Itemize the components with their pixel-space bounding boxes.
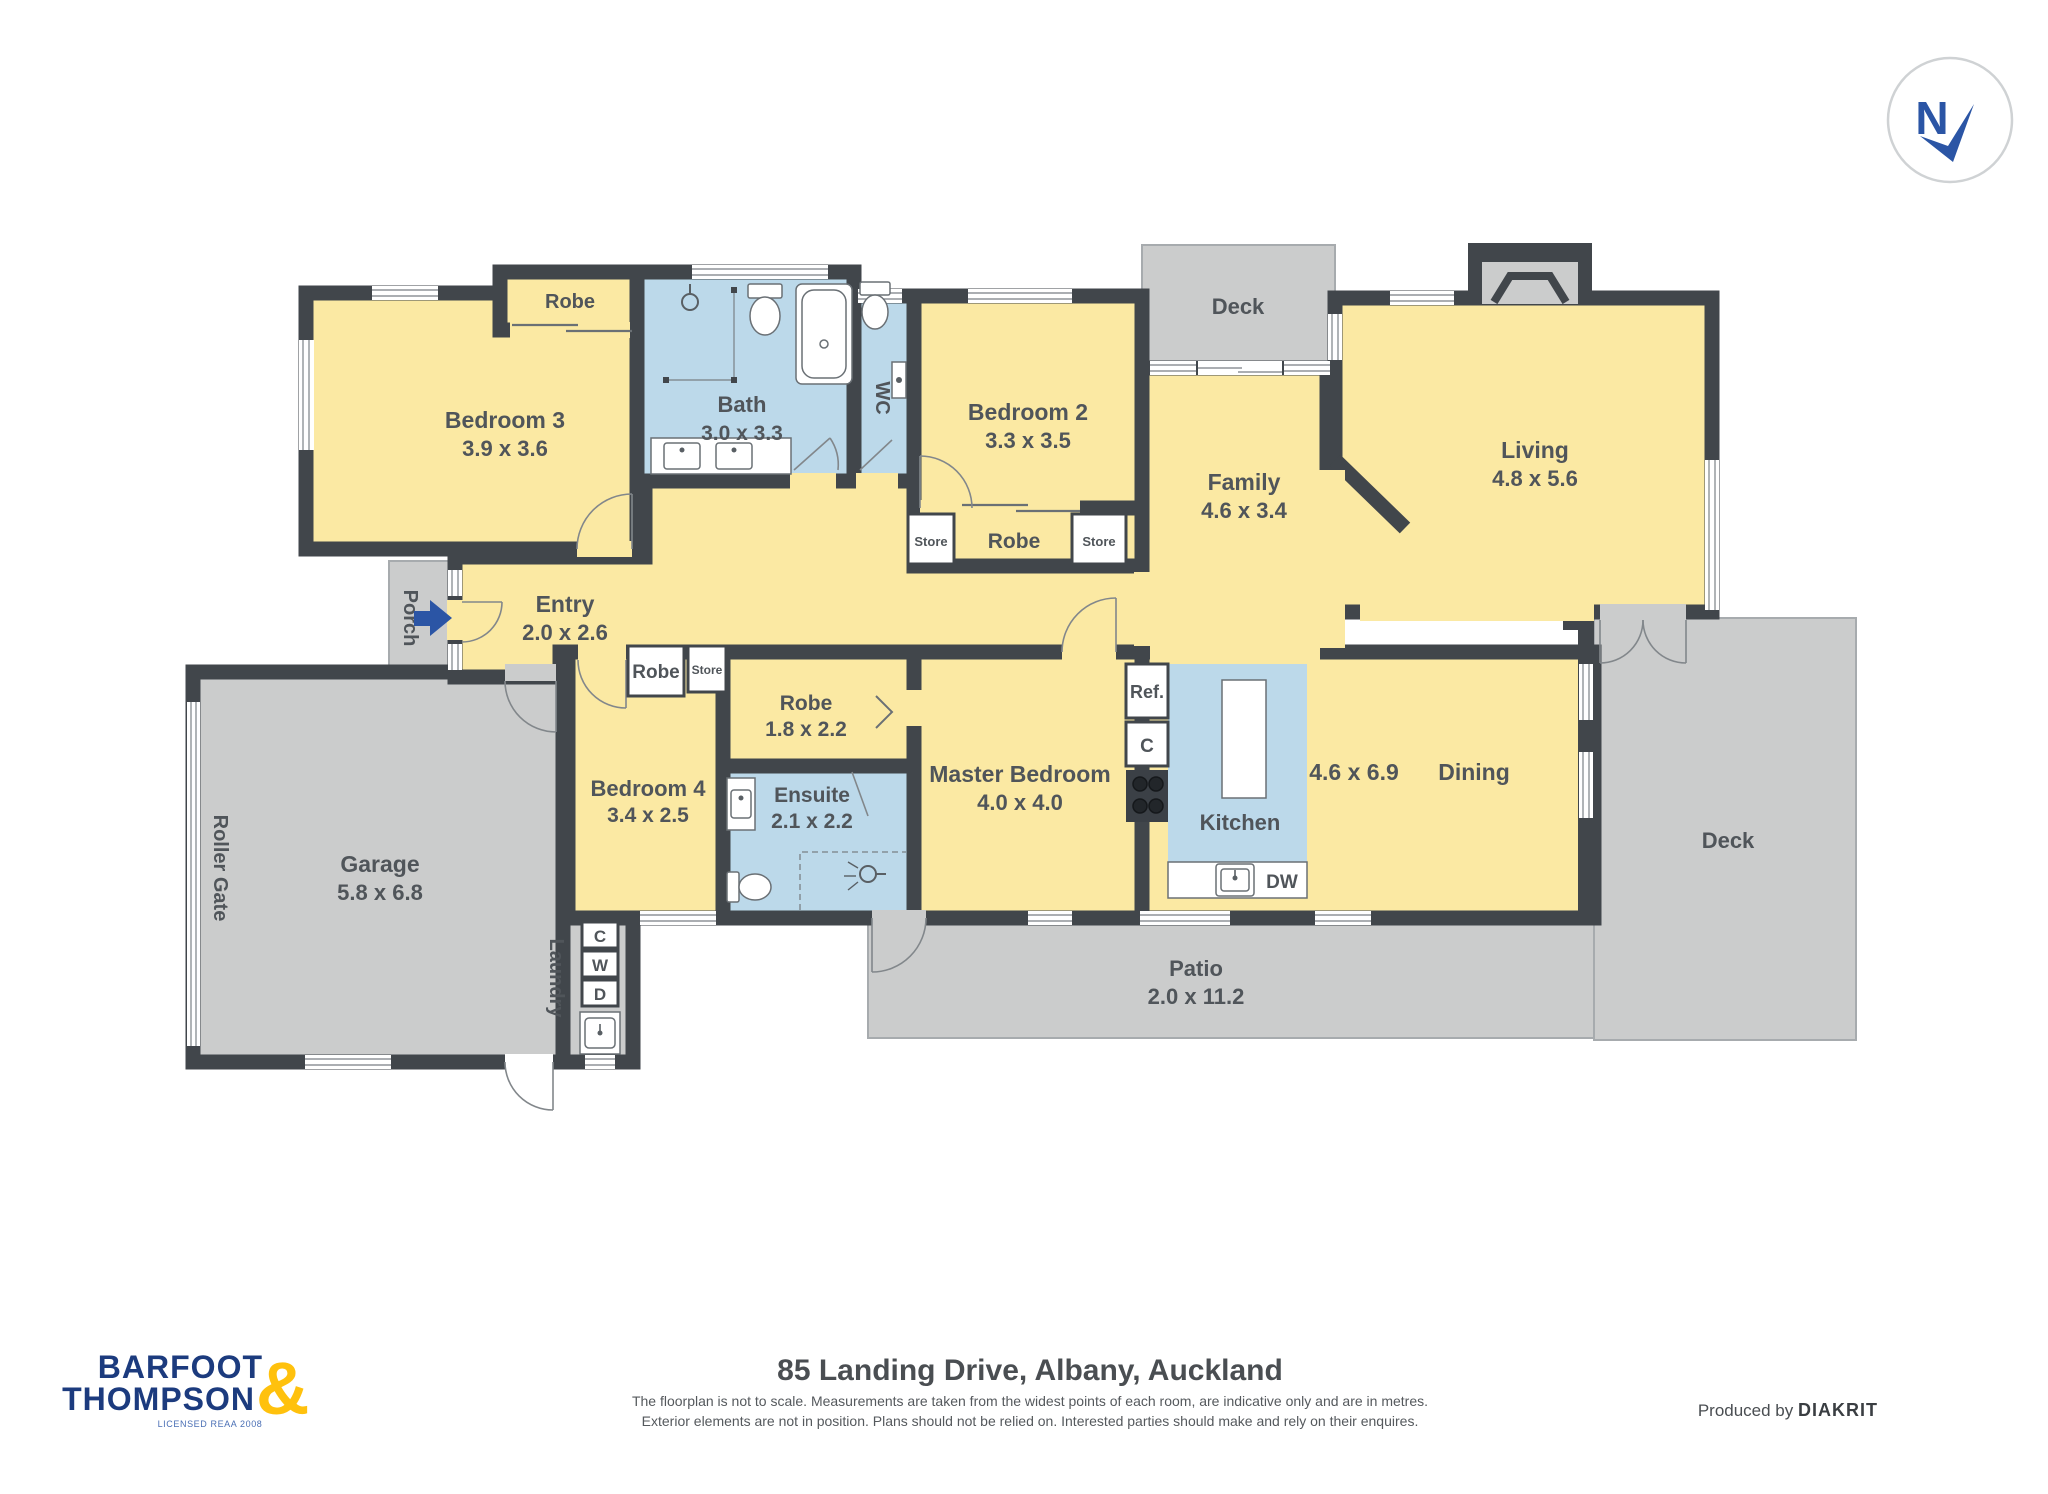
produced-by-label: Produced by xyxy=(1698,1401,1798,1420)
opening xyxy=(1134,572,1150,646)
opening xyxy=(906,690,922,726)
opening xyxy=(577,541,632,557)
window xyxy=(448,570,462,596)
sliding-door xyxy=(1198,361,1282,375)
patio-label: Patio xyxy=(1169,956,1223,981)
logo-ampersand: & xyxy=(256,1347,309,1430)
fireplace-icon xyxy=(1468,243,1592,305)
bedroom3-label: Bedroom 3 xyxy=(445,407,565,433)
garage-door-window xyxy=(305,1055,391,1069)
window xyxy=(372,286,438,300)
master-label: Master Bedroom xyxy=(929,761,1110,787)
bedroom4-label: Bedroom 4 xyxy=(591,776,707,801)
entry-dims: 2.0 x 2.6 xyxy=(522,620,608,645)
laundry-tub-icon xyxy=(580,1012,620,1054)
living-label: Living xyxy=(1501,437,1569,463)
window xyxy=(448,644,462,670)
window xyxy=(1140,911,1230,925)
window xyxy=(299,340,314,450)
ensuite-vanity-icon xyxy=(727,778,755,830)
bathtub-icon xyxy=(796,284,852,384)
wc-basin-icon xyxy=(892,362,906,398)
opening xyxy=(856,473,898,489)
disclaimer-line1: The floorplan is not to scale. Measureme… xyxy=(632,1393,1428,1409)
producer-name: DIAKRIT xyxy=(1798,1400,1878,1420)
roller-gate-label: Roller Gate xyxy=(209,815,231,922)
store-c-label: Store xyxy=(692,663,723,677)
compass-icon: N xyxy=(1888,58,2012,182)
entry-label: Entry xyxy=(536,591,595,617)
opening xyxy=(1360,604,1594,621)
robe-master-label: Robe xyxy=(780,692,833,715)
floor-plan: Bedroom 3 3.9 x 3.6 Robe Bath 3.0 x 3.3 … xyxy=(0,0,2048,1494)
footer: BARFOOT THOMPSON & LICENSED REAA 2008 85… xyxy=(62,1347,1878,1430)
ensuite-dims: 2.1 x 2.2 xyxy=(771,810,853,833)
window xyxy=(585,1055,615,1069)
opening xyxy=(1318,470,1345,648)
window xyxy=(692,265,828,279)
barfoot-thompson-logo: BARFOOT THOMPSON & LICENSED REAA 2008 xyxy=(62,1347,309,1430)
ensuite-label: Ensuite xyxy=(774,784,850,807)
dishwasher-label: DW xyxy=(1266,872,1298,893)
window xyxy=(640,911,716,925)
family-label: Family xyxy=(1208,469,1281,495)
store-b-label: Store xyxy=(1082,534,1115,549)
opening xyxy=(1150,641,1320,665)
bedroom2-dims: 3.3 x 3.5 xyxy=(985,428,1071,453)
logo-word1: BARFOOT xyxy=(98,1349,263,1385)
ensuite-toilet-icon xyxy=(727,872,771,902)
toilet-icon xyxy=(748,284,782,335)
bedroom4-dims: 3.4 x 2.5 xyxy=(607,804,689,827)
laundry-w-label: W xyxy=(592,956,609,975)
address-title: 85 Landing Drive, Albany, Auckland xyxy=(777,1354,1283,1387)
bedroom3-dims: 3.9 x 3.6 xyxy=(462,436,548,461)
floorplan-page: Bedroom 3 3.9 x 3.6 Robe Bath 3.0 x 3.3 … xyxy=(0,0,2048,1494)
family-dims: 4.6 x 3.4 xyxy=(1201,498,1287,523)
deck-right-label: Deck xyxy=(1702,828,1755,853)
bath-label: Bath xyxy=(718,392,767,417)
opening xyxy=(1600,604,1686,620)
robe-master-dims: 1.8 x 2.2 xyxy=(765,718,847,741)
garage-dims: 5.8 x 6.8 xyxy=(337,880,423,905)
bath-dims: 3.0 x 3.3 xyxy=(701,422,783,445)
laundry-c-label: C xyxy=(594,927,606,946)
dining-label: Dining xyxy=(1438,759,1510,785)
kitchen-island xyxy=(1222,680,1266,798)
produced-by: Produced by DIAKRIT xyxy=(1698,1400,1878,1420)
window xyxy=(1390,291,1454,305)
disclaimer-line2: Exterior elements are not in position. P… xyxy=(642,1413,1419,1429)
wc-label: WC xyxy=(871,381,893,414)
cupboard-label: C xyxy=(1140,736,1154,757)
master-dims: 4.0 x 4.0 xyxy=(977,790,1063,815)
window xyxy=(1150,361,1196,375)
opening xyxy=(1062,644,1116,660)
robe-bed3-label: Robe xyxy=(545,291,595,313)
deck-top-label: Deck xyxy=(1212,294,1265,319)
kitchen-label: Kitchen xyxy=(1200,810,1281,835)
fridge-label: Ref. xyxy=(1130,682,1164,702)
roller-gate-door xyxy=(187,702,200,1046)
openplan-dims: 4.6 x 6.9 xyxy=(1309,759,1399,785)
kitchen-sink-icon xyxy=(1216,864,1254,896)
window xyxy=(1579,664,1593,720)
cooktop-icon xyxy=(1126,770,1168,822)
laundry-label: Laundry xyxy=(545,939,567,1019)
window xyxy=(968,289,1072,303)
opening xyxy=(505,664,556,681)
window xyxy=(1579,752,1593,818)
opening xyxy=(790,473,836,489)
opening xyxy=(872,910,926,927)
window xyxy=(1028,911,1072,925)
garage-label: Garage xyxy=(340,851,419,877)
logo-tagline: LICENSED REAA 2008 xyxy=(158,1419,263,1429)
window xyxy=(1315,911,1371,925)
patio-dims: 2.0 x 11.2 xyxy=(1148,984,1245,1009)
window xyxy=(1284,361,1330,375)
laundry-d-label: D xyxy=(594,985,606,1004)
patio-area xyxy=(868,918,1594,1038)
store-a-label: Store xyxy=(914,534,947,549)
opening xyxy=(960,500,1080,516)
logo-word2: THOMPSON xyxy=(62,1381,255,1417)
living-dims: 4.8 x 5.6 xyxy=(1492,466,1578,491)
robe-bed2-label: Robe xyxy=(988,530,1041,553)
window xyxy=(1328,314,1342,360)
compass-circle xyxy=(1888,58,2012,182)
bedroom2-label: Bedroom 2 xyxy=(968,399,1088,425)
robe-bed4-label: Robe xyxy=(632,662,680,683)
window xyxy=(1705,460,1719,610)
opening xyxy=(505,1054,553,1071)
opening xyxy=(578,644,626,660)
wc-toilet-icon xyxy=(860,282,890,329)
